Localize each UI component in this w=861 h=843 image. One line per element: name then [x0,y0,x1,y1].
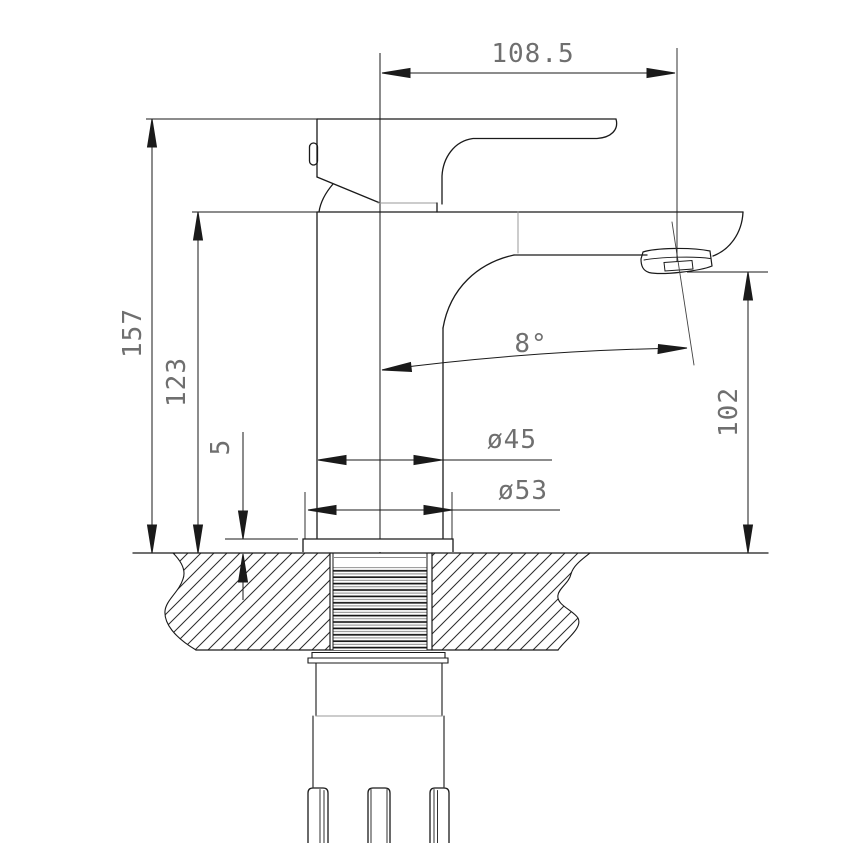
dim-123 [192,212,318,553]
deck-plate [303,539,453,552]
dim-102-label: 102 [716,387,742,437]
dim-157-label: 157 [120,308,146,358]
supply-tail-left [308,788,328,843]
faucet-handle [310,119,617,212]
dim-diam-53-label: ø53 [498,478,548,504]
under-counter-assembly [308,653,448,788]
lock-washer [312,653,445,659]
dim-angle-8-label: 8° [514,331,547,357]
dim-157 [146,119,318,553]
dim-108-5 [382,48,677,262]
counter-hatch-right [432,553,590,650]
dim-diam-45 [318,456,552,465]
dim-5-label: 5 [208,439,234,456]
counter-hatch-left [165,553,330,650]
dim-diam-45-label: ø45 [487,427,537,453]
countertop-cross-section [133,553,768,650]
aerator [641,222,712,365]
handle-indicator-button [310,143,318,165]
base-washer [308,658,448,663]
dim-108-5-label: 108.5 [491,41,574,67]
threaded-shank [333,553,427,650]
dim-123-label: 123 [164,357,190,407]
supply-tail-right [430,788,449,843]
supply-tails [308,788,449,843]
aerator-axis-line [672,222,694,365]
technical-drawing: 108.5 157 123 5 ø45 ø53 102 8° [0,0,861,843]
